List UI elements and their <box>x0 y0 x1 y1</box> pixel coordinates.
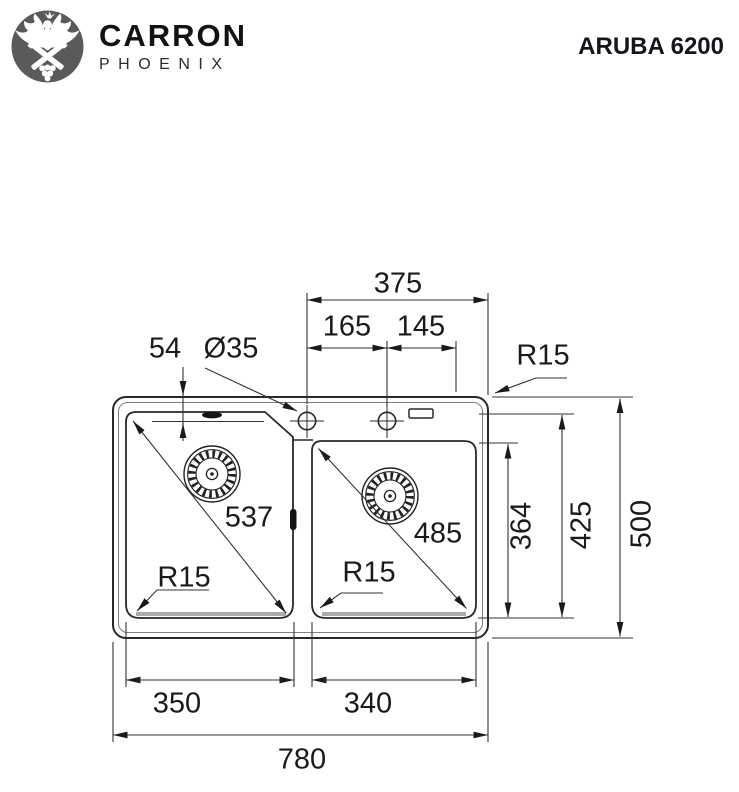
dim-425-label: 425 <box>568 501 597 549</box>
tap-hole-2 <box>370 405 404 438</box>
dim-364-label: 364 <box>508 502 537 550</box>
dim-780-label: 780 <box>278 746 326 775</box>
dim-r15-left-label: R15 <box>157 564 210 593</box>
dim-dia35-label: Ø35 <box>204 335 259 364</box>
dim-375-label: 375 <box>374 270 422 299</box>
dim-145-label: 145 <box>397 313 445 342</box>
spec-sheet-page: CARRON PHOENIX ARUBA 6200 <box>0 0 739 792</box>
dim-500-label: 500 <box>628 500 657 548</box>
waste-outlet-left <box>184 446 240 502</box>
waste-outlet-right <box>362 468 418 524</box>
dim-54-label: 54 <box>149 335 181 364</box>
accessory-hole <box>409 409 433 418</box>
sink-technical-drawing <box>0 0 739 792</box>
dim-r15-right-label: R15 <box>342 559 395 588</box>
dim-r15-top-label: R15 <box>516 342 569 371</box>
dim-350-label: 350 <box>153 690 201 719</box>
dim-340-label: 340 <box>344 690 392 719</box>
dim-165-label: 165 <box>323 313 371 342</box>
dim-485-label: 485 <box>414 520 462 549</box>
overflow-slot <box>290 509 297 530</box>
dim-537-label: 537 <box>225 504 273 533</box>
brand-stamp <box>202 412 222 419</box>
